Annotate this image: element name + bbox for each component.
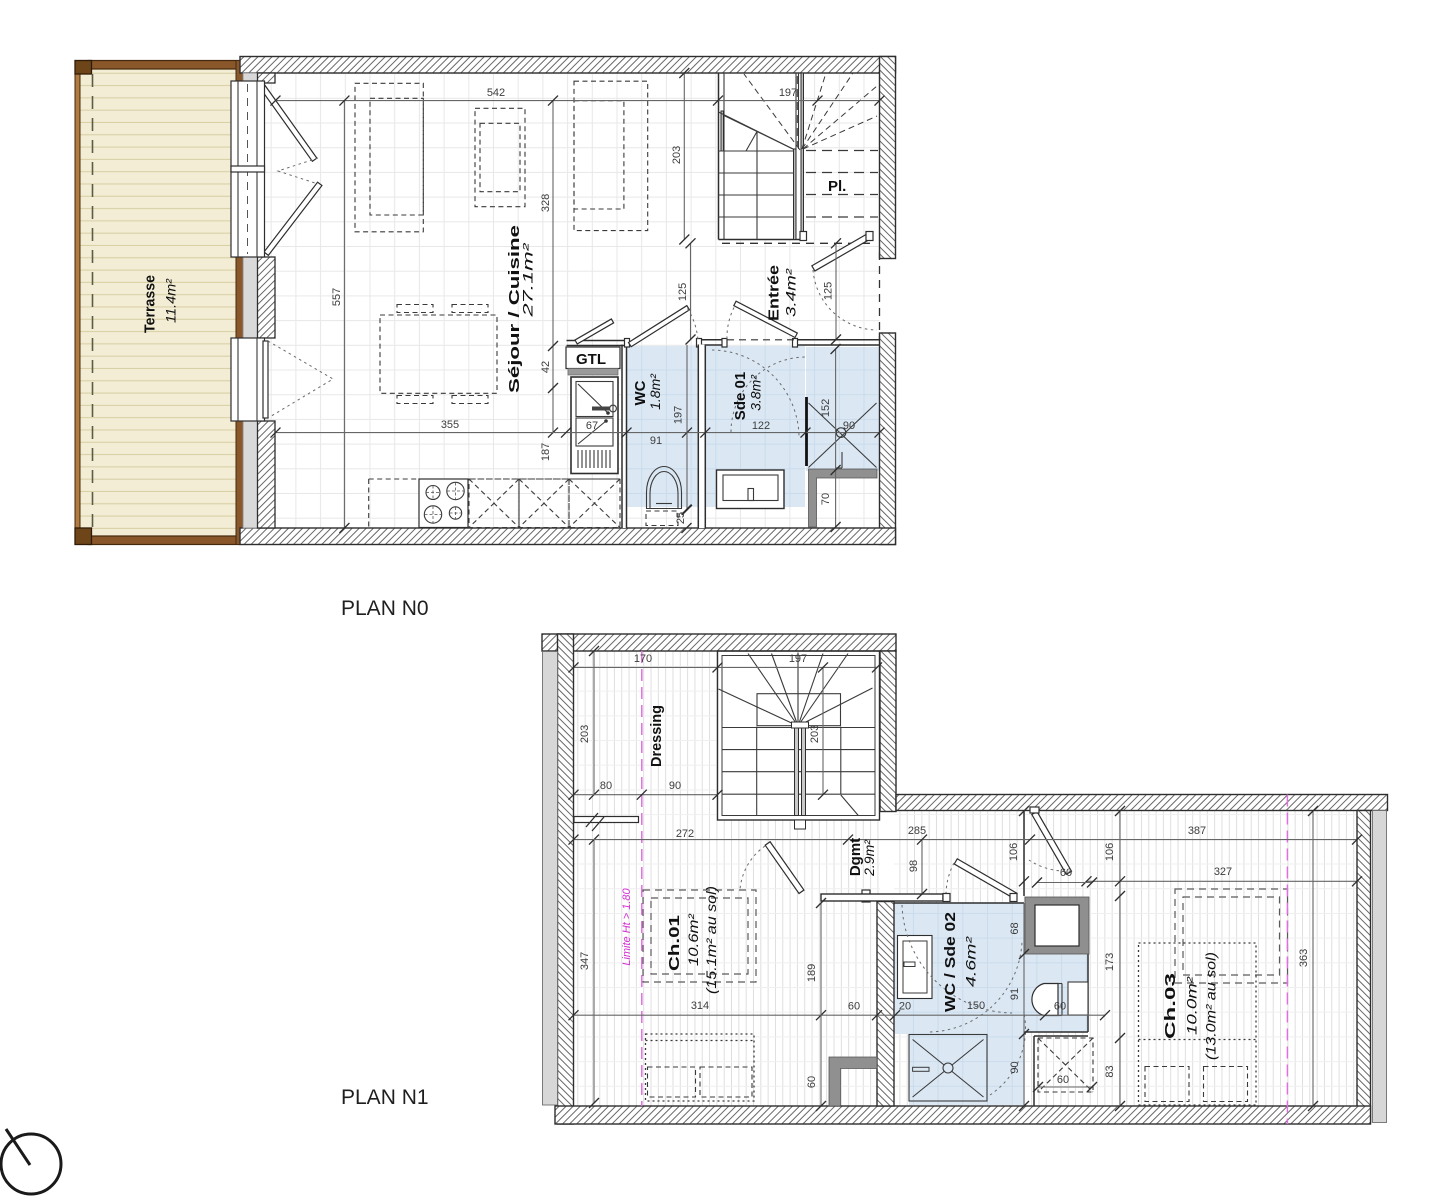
svg-text:125: 125 [677, 283, 689, 301]
svg-text:1.8m²: 1.8m² [647, 373, 663, 410]
svg-text:542: 542 [487, 87, 505, 99]
svg-text:67: 67 [586, 420, 598, 432]
svg-text:2.9m²: 2.9m² [861, 839, 877, 877]
svg-text:187: 187 [540, 443, 552, 461]
svg-text:203: 203 [809, 725, 821, 743]
svg-text:152: 152 [820, 399, 832, 417]
svg-text:25: 25 [675, 512, 687, 524]
svg-text:(15.1m² au sol): (15.1m² au sol) [703, 886, 719, 994]
svg-text:197: 197 [779, 87, 797, 99]
svg-text:285: 285 [908, 825, 926, 837]
svg-text:90: 90 [669, 780, 681, 792]
svg-text:Ch.03: Ch.03 [1162, 973, 1179, 1039]
svg-text:60: 60 [848, 1001, 860, 1013]
svg-text:Entrée: Entrée [766, 265, 783, 321]
svg-text:203: 203 [671, 146, 683, 164]
svg-text:Terrasse: Terrasse [142, 275, 159, 333]
svg-text:70: 70 [820, 493, 832, 505]
svg-text:20: 20 [899, 1001, 911, 1013]
svg-text:272: 272 [676, 828, 694, 840]
svg-text:327: 327 [1214, 866, 1232, 878]
svg-text:90: 90 [1009, 1061, 1021, 1073]
svg-text:203: 203 [579, 725, 591, 743]
svg-text:PLAN N1: PLAN N1 [341, 1086, 429, 1109]
svg-text:91: 91 [1009, 988, 1021, 1000]
svg-text:Limite Ht > 1.80: Limite Ht > 1.80 [621, 887, 633, 965]
svg-text:60: 60 [1057, 1074, 1069, 1086]
svg-text:173: 173 [1104, 953, 1116, 971]
svg-text:Ch.01: Ch.01 [666, 915, 683, 971]
svg-text:106: 106 [1104, 843, 1116, 861]
svg-text:150: 150 [967, 1000, 985, 1012]
svg-text:PLAN N0: PLAN N0 [341, 597, 429, 620]
svg-text:27.1m²: 27.1m² [520, 241, 536, 318]
svg-text:197: 197 [789, 653, 807, 665]
svg-text:355: 355 [441, 419, 459, 431]
svg-text:197: 197 [673, 406, 685, 424]
svg-text:387: 387 [1188, 825, 1206, 837]
svg-text:170: 170 [634, 653, 652, 665]
svg-text:10.0m²: 10.0m² [1184, 975, 1200, 1035]
svg-text:11.4m²: 11.4m² [163, 278, 179, 323]
svg-text:60: 60 [1060, 867, 1072, 879]
svg-text:122: 122 [752, 420, 770, 432]
svg-text:3.8m²: 3.8m² [748, 374, 764, 411]
svg-text:363: 363 [1298, 949, 1310, 967]
svg-text:328: 328 [540, 194, 552, 212]
svg-text:3.4m²: 3.4m² [783, 267, 799, 317]
svg-text:(13.0m² au sol): (13.0m² au sol) [1203, 952, 1219, 1060]
svg-text:4.6m²: 4.6m² [963, 935, 979, 987]
svg-text:Pl.: Pl. [828, 178, 846, 195]
svg-text:Sde 01: Sde 01 [732, 372, 749, 420]
svg-text:WC / Sde 02: WC / Sde 02 [942, 912, 959, 1012]
svg-text:189: 189 [806, 964, 818, 982]
svg-text:314: 314 [691, 1000, 709, 1012]
svg-text:98: 98 [908, 860, 920, 872]
svg-text:42: 42 [540, 361, 552, 373]
svg-text:60: 60 [1054, 1001, 1066, 1013]
svg-text:91: 91 [650, 435, 662, 447]
svg-text:10.6m²: 10.6m² [685, 912, 701, 966]
svg-text:GTL: GTL [576, 351, 606, 368]
svg-text:68: 68 [1009, 922, 1021, 934]
svg-text:557: 557 [331, 288, 343, 306]
svg-text:60: 60 [806, 1076, 818, 1088]
svg-text:125: 125 [823, 282, 835, 300]
svg-text:Dressing: Dressing [648, 705, 665, 767]
svg-text:83: 83 [1104, 1065, 1116, 1077]
svg-text:347: 347 [579, 952, 591, 970]
svg-text:80: 80 [600, 780, 612, 792]
svg-text:106: 106 [1008, 843, 1020, 861]
